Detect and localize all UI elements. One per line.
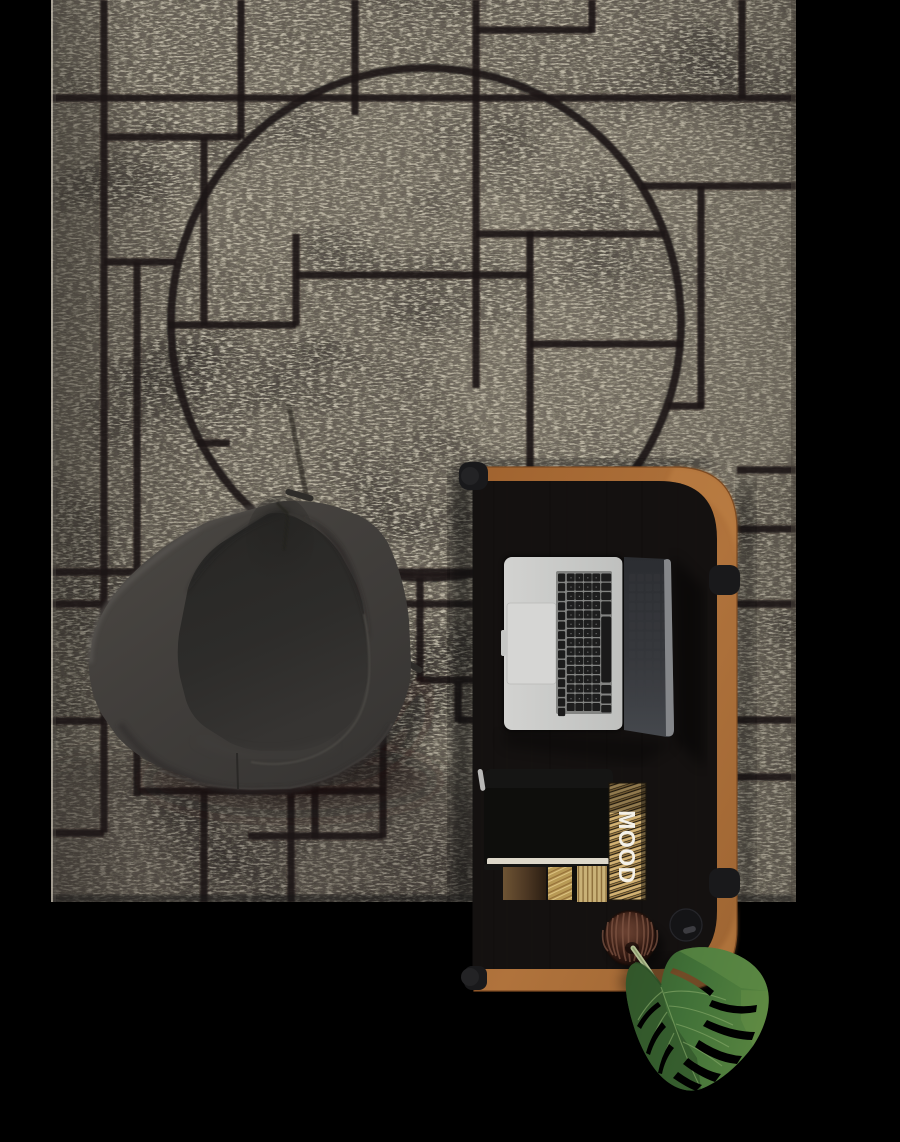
svg-text:MOOD: MOOD: [614, 810, 640, 884]
